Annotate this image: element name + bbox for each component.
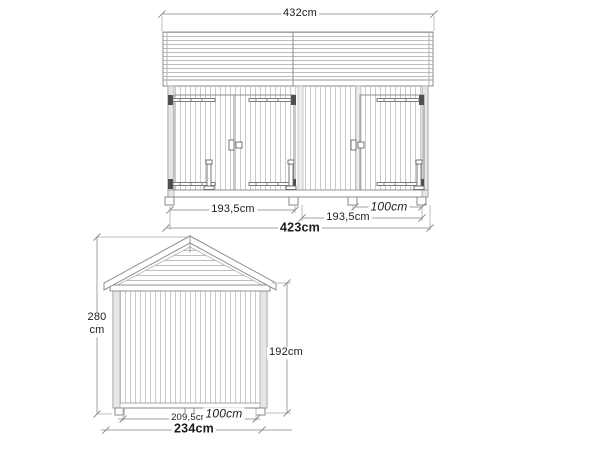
dim-label-shelter-depth: 100cm <box>203 408 244 421</box>
side-wall <box>113 291 267 408</box>
eave-fascia <box>110 285 270 291</box>
dim-label-roof-width: 432cm <box>281 8 319 20</box>
dim-label-left-module-width: 193,5cm <box>209 204 257 216</box>
dim-label-total-width: 423cm <box>278 221 322 234</box>
dim-label-wall-height: 192cm <box>267 347 305 359</box>
side-elevation <box>104 236 276 415</box>
dim-label-right-module-width: 193,5cm <box>324 212 372 224</box>
dim-label-total-depth: 234cm <box>172 422 216 435</box>
dim-label-shelter-width: 100cm <box>368 201 409 214</box>
dim-label-ridge-height-value: 280 <box>86 312 109 324</box>
corner-post-right <box>260 291 267 408</box>
shed-technical-drawing: 432cm 193,5cm 100cm 193,5cm 423cm 280 cm… <box>0 0 600 450</box>
mid-post <box>298 86 303 190</box>
dim-label-ridge-height-unit: cm <box>87 325 106 337</box>
front-elevation <box>163 32 433 205</box>
front-roof <box>163 32 433 86</box>
corner-post-left <box>113 291 120 408</box>
